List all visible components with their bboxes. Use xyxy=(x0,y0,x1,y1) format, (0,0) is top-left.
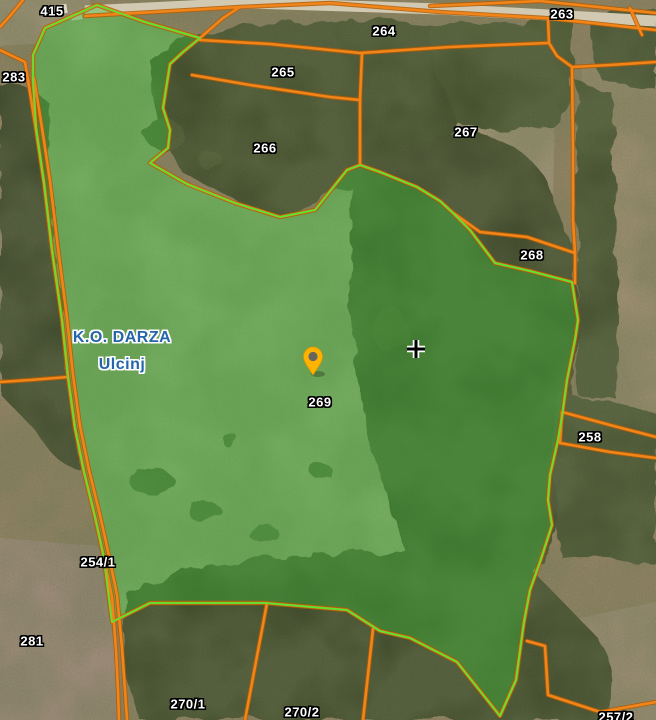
satellite-basemap xyxy=(0,0,656,720)
map-viewport[interactable]: 415 283 264 263 265 266 267 268 269 258 … xyxy=(0,0,656,720)
